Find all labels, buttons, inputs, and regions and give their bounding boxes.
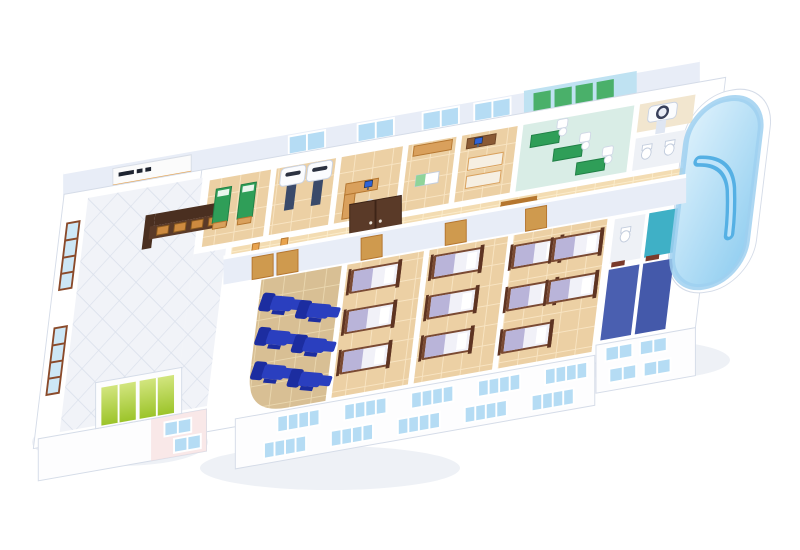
- floorplan-illustration: [0, 0, 800, 550]
- counter-panel: [156, 225, 168, 235]
- ward-door: [361, 235, 382, 261]
- lounge-door: [252, 254, 273, 280]
- ward-door: [445, 220, 466, 246]
- ward-door: [526, 206, 547, 232]
- floorplan-stage: [0, 0, 800, 550]
- lounge-door: [277, 249, 298, 275]
